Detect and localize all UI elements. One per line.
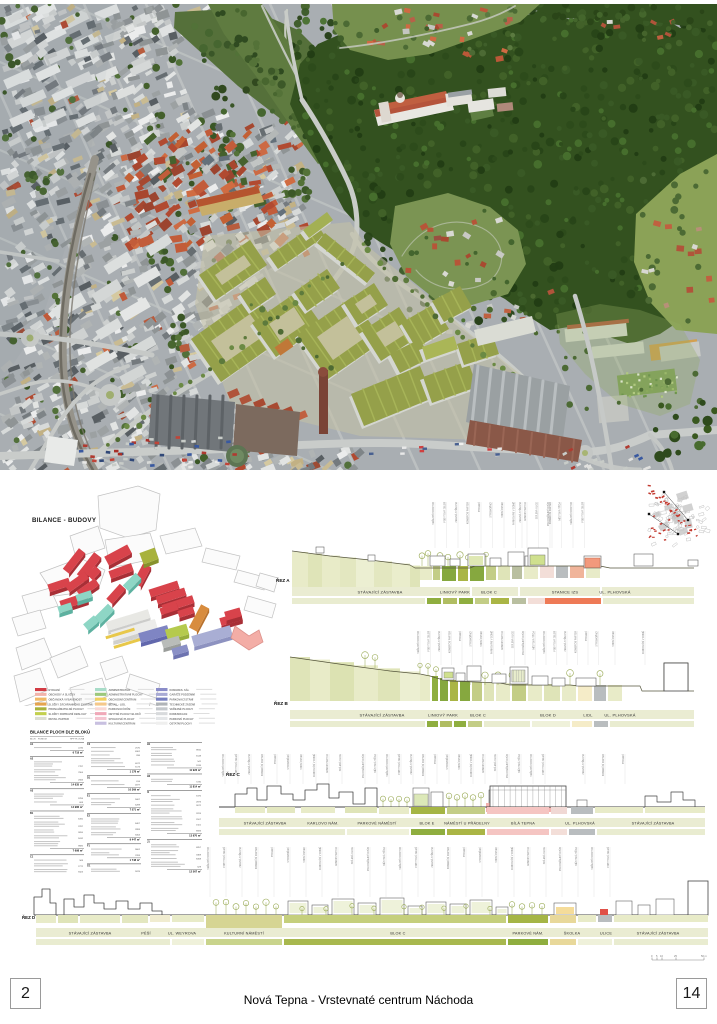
svg-text:ZELENÁ STŘECHA: ZELENÁ STŘECHA: [410, 754, 413, 775]
svg-text:ADMINISTRATIVA: ADMINISTRATIVA: [527, 847, 530, 866]
svg-text:KONGRES. SÁL: KONGRES. SÁL: [170, 687, 190, 692]
svg-text:608: 608: [79, 802, 83, 804]
svg-text:BYDLENÍ: BYDLENÍ: [478, 502, 481, 512]
svg-text:ADMINISTRATIVA: ADMINISTRATIVA: [501, 631, 504, 650]
svg-text:1 178 m²: 1 178 m²: [130, 770, 141, 774]
svg-text:FUNKCE: FUNKCE: [38, 739, 48, 741]
svg-text:ZELENÁ STŘECHA: ZELENÁ STŘECHA: [519, 502, 522, 523]
svg-text:7230: 7230: [196, 781, 202, 783]
svg-text:VODNÍ PRVEK: VODNÍ PRVEK: [300, 754, 303, 770]
svg-text:7 571 m²: 7 571 m²: [130, 808, 141, 812]
svg-text:STANICE IZS: STANICE IZS: [552, 590, 579, 595]
svg-text:HPP PLOCHA: HPP PLOCHA: [70, 738, 85, 741]
svg-text:SPOLKOVÉ PLOCHY: SPOLKOVÉ PLOCHY: [109, 716, 135, 721]
svg-text:BYDLENÍ: BYDLENÍ: [49, 687, 61, 692]
svg-text:VEŘEJNÝ PROSTOR: VEŘEJNÝ PROSTOR: [570, 502, 573, 525]
svg-text:STROMOŘADÍ: STROMOŘADÍ: [446, 754, 449, 770]
svg-text:BYDLENÍ: BYDLENÍ: [585, 631, 588, 641]
svg-text:10: 10: [660, 954, 663, 958]
svg-text:STROMOŘADÍ: STROMOŘADÍ: [596, 631, 599, 647]
svg-text:VEŘEJNÝ PROSTOR: VEŘEJNÝ PROSTOR: [207, 847, 210, 870]
svg-text:9784: 9784: [78, 798, 84, 800]
svg-text:50 m: 50 m: [701, 954, 707, 958]
svg-text:UL. PLHOVSKÁ: UL. PLHOVSKÁ: [565, 822, 595, 826]
svg-text:14 986 m²: 14 986 m²: [71, 805, 83, 809]
svg-text:3107: 3107: [196, 819, 202, 821]
svg-text:BÍLÁ TEPNA: BÍLÁ TEPNA: [511, 822, 535, 826]
svg-text:A2: A2: [30, 757, 34, 760]
svg-text:BLOK C: BLOK C: [470, 713, 486, 718]
svg-text:PARKOVÁNÍ V DOMĚ: PARKOVÁNÍ V DOMĚ: [511, 847, 514, 870]
svg-text:STROMOŘADÍ: STROMOŘADÍ: [479, 847, 482, 863]
svg-text:9810: 9810: [196, 750, 202, 752]
svg-text:C2: C2: [87, 743, 91, 746]
svg-text:RETAIL - LIDL: RETAIL - LIDL: [109, 702, 127, 706]
svg-text:ULICE: ULICE: [600, 932, 612, 936]
svg-text:PARKOVÁNÍ V DOMĚ: PARKOVÁNÍ V DOMĚ: [491, 631, 494, 654]
svg-text:ADMINISTRATIVA: ADMINISTRATIVA: [482, 754, 485, 773]
svg-text:25: 25: [674, 954, 677, 958]
svg-text:KOMERČNÍ PARTER: KOMERČNÍ PARTER: [261, 754, 264, 776]
svg-text:E1: E1: [87, 794, 91, 797]
svg-text:VODNÍ PRVEK: VODNÍ PRVEK: [458, 754, 461, 770]
svg-text:VODNÍ PRVEK: VODNÍ PRVEK: [612, 631, 615, 647]
svg-text:BILANCE - BUDOVY: BILANCE - BUDOVY: [32, 517, 97, 524]
svg-text:4877: 4877: [135, 785, 141, 787]
svg-text:2570: 2570: [135, 748, 141, 750]
svg-text:PRONAJÍMATELNÉ PLOCHY: PRONAJÍMATELNÉ PLOCHY: [49, 706, 85, 711]
svg-text:KOMERČNÍ PARTER: KOMERČNÍ PARTER: [255, 847, 258, 869]
svg-text:SDÍLENÁ ULICE: SDÍLENÁ ULICE: [339, 754, 342, 772]
svg-text:KOMERČNÍ PARTER: KOMERČNÍ PARTER: [467, 502, 470, 524]
svg-text:I1: I1: [147, 791, 150, 794]
svg-text:541: 541: [197, 761, 201, 763]
svg-text:B1: B1: [30, 812, 34, 815]
svg-text:OBYTNÉ PLOCHY BLOKŮ: OBYTNÉ PLOCHY BLOKŮ: [109, 711, 141, 716]
svg-text:KARLOVO NÁM.: KARLOVO NÁM.: [307, 822, 338, 826]
svg-text:ADMINISTRATIVNÍ PLOCHY: ADMINISTRATIVNÍ PLOCHY: [109, 692, 144, 697]
svg-text:PARKOVÁNÍ V DOMĚ: PARKOVÁNÍ V DOMĚ: [642, 631, 645, 654]
svg-text:ŠKOLKA: ŠKOLKA: [564, 931, 581, 936]
svg-text:PARKOVÁNÍ V DOMĚ: PARKOVÁNÍ V DOMĚ: [470, 754, 473, 777]
svg-text:STÁVAJÍCÍ ZÁSTAVBA: STÁVAJÍCÍ ZÁSTAVBA: [637, 932, 680, 936]
svg-text:5: 5: [656, 954, 658, 958]
svg-text:KULTURNÍ CENTRUM: KULTURNÍ CENTRUM: [109, 721, 136, 726]
svg-text:A1: A1: [30, 743, 34, 746]
svg-text:5667: 5667: [135, 799, 141, 801]
svg-text:STROMOŘADÍ: STROMOŘADÍ: [470, 631, 473, 647]
svg-text:OBČANSKÁ VYBAVENOST: OBČANSKÁ VYBAVENOST: [49, 697, 83, 702]
svg-text:BLOK: BLOK: [30, 739, 36, 741]
svg-text:VEŘEJNÝ PROSTOR: VEŘEJNÝ PROSTOR: [417, 631, 420, 654]
svg-text:3226: 3226: [196, 813, 202, 815]
svg-text:LIDL: LIDL: [583, 713, 593, 718]
svg-text:MĚSTSKÁ TŘÍDA: MĚSTSKÁ TŘÍDA: [533, 631, 536, 650]
svg-text:POBYTOVÁ ZELEŇ: POBYTOVÁ ZELEŇ: [582, 502, 585, 523]
svg-text:11 923 m²: 11 923 m²: [189, 768, 201, 772]
svg-text:1501: 1501: [196, 825, 202, 827]
svg-text:POLOVEŘEJNÝ DVŮR: POLOVEŘEJNÝ DVŮR: [367, 847, 370, 871]
svg-text:KOMERČNÍ PARTER: KOMERČNÍ PARTER: [447, 847, 450, 869]
svg-text:VEŘEJNÉ PLOCHY: VEŘEJNÉ PLOCHY: [170, 706, 194, 711]
svg-text:UL. WEYROVA: UL. WEYROVA: [168, 932, 197, 936]
svg-text:BILANCE PLOCH DLE BLOKŮ: BILANCE PLOCH DLE BLOKŮ: [30, 730, 90, 735]
svg-text:KOMERČNÍ PARTER: KOMERČNÍ PARTER: [449, 631, 452, 653]
svg-text:ZELENÁ STŘECHA: ZELENÁ STŘECHA: [438, 631, 441, 652]
svg-text:BYDLENÍ: BYDLENÍ: [274, 754, 277, 764]
svg-text:10 369 m²: 10 369 m²: [128, 788, 140, 792]
svg-text:3746: 3746: [196, 765, 202, 767]
svg-text:OBCHODY A SLUŽBY: OBCHODY A SLUŽBY: [49, 692, 76, 697]
svg-text:5064: 5064: [135, 835, 141, 837]
svg-text:7804: 7804: [78, 772, 84, 774]
svg-text:ŘEZ C: ŘEZ C: [226, 770, 240, 777]
svg-text:VODNÍ PRVEK: VODNÍ PRVEK: [480, 631, 483, 647]
svg-text:VEŘEJNÝ PROSTOR: VEŘEJNÝ PROSTOR: [543, 631, 546, 654]
svg-text:PARKOVACÍ STÁNÍ: PARKOVACÍ STÁNÍ: [170, 697, 194, 702]
svg-text:13 970 m²: 13 970 m²: [189, 833, 201, 837]
svg-text:6 718 m²: 6 718 m²: [73, 751, 84, 755]
svg-text:POLOVEŘEJNÝ DVŮR: POLOVEŘEJNÝ DVŮR: [559, 847, 562, 871]
svg-text:BYDLENÍ: BYDLENÍ: [463, 847, 466, 857]
svg-text:VEŘEJNÝ PROSTOR: VEŘEJNÝ PROSTOR: [530, 754, 533, 777]
svg-text:5375: 5375: [196, 796, 202, 798]
svg-text:STÁVAJÍCÍ ZÁSTAVBA: STÁVAJÍCÍ ZÁSTAVBA: [244, 822, 287, 826]
svg-text:KOMERČNÍ PARTER: KOMERČNÍ PARTER: [602, 754, 605, 776]
svg-text:BLOK C: BLOK C: [481, 590, 497, 595]
svg-text:KULTURNÍ NÁMĚSTÍ: KULTURNÍ NÁMĚSTÍ: [224, 931, 265, 936]
svg-text:ADMINISTRATIVA: ADMINISTRATIVA: [335, 847, 338, 866]
svg-text:STROMOŘADÍ: STROMOŘADÍ: [287, 754, 290, 770]
svg-text:ZELENÁ STŘECHA: ZELENÁ STŘECHA: [455, 502, 458, 523]
svg-text:ADMINISTRATIVA: ADMINISTRATIVA: [326, 754, 329, 773]
svg-text:2873: 2873: [196, 801, 202, 803]
svg-text:VODNÍ PRVEK: VODNÍ PRVEK: [495, 847, 498, 863]
svg-text:SLOŽKY DOPRAVNÍ OBSLUHY: SLOŽKY DOPRAVNÍ OBSLUHY: [49, 711, 87, 716]
svg-text:6902: 6902: [135, 751, 141, 753]
svg-text:4672: 4672: [135, 763, 141, 765]
svg-text:SDÍLENÁ ULICE: SDÍLENÁ ULICE: [543, 847, 546, 865]
svg-text:KOMERČNÍ PARTER: KOMERČNÍ PARTER: [422, 754, 425, 776]
svg-text:D1: D1: [87, 776, 91, 779]
svg-text:POBYTOVÁ ZELEŇ: POBYTOVÁ ZELEŇ: [542, 754, 545, 775]
svg-text:SDÍLENÁ ULICE: SDÍLENÁ ULICE: [494, 754, 497, 772]
svg-text:POBYTOVÁ ZELEŇ: POBYTOVÁ ZELEŇ: [398, 754, 401, 775]
svg-text:H1: H1: [147, 743, 151, 746]
svg-text:POLOVEŘEJNÝ DVŮR: POLOVEŘEJNÝ DVŮR: [522, 631, 525, 655]
svg-text:ADMINISTRATIVA: ADMINISTRATIVA: [109, 688, 131, 692]
svg-text:RETAIL PARTER: RETAIL PARTER: [49, 717, 69, 721]
svg-text:6289: 6289: [135, 805, 141, 807]
svg-text:ZELENÁ STŘECHA: ZELENÁ STŘECHA: [239, 847, 242, 868]
svg-text:LINIOVÝ PARK: LINIOVÝ PARK: [440, 590, 470, 595]
svg-text:8593: 8593: [196, 830, 202, 832]
svg-text:KOMUNIKACE: KOMUNIKACE: [170, 712, 188, 716]
svg-text:STÁVAJÍCÍ ZÁSTAVBA: STÁVAJÍCÍ ZÁSTAVBA: [360, 713, 405, 718]
svg-text:MĚSTSKÁ TŘÍDA: MĚSTSKÁ TŘÍDA: [575, 847, 578, 866]
svg-text:POBYTOVÁ ZELEŇ: POBYTOVÁ ZELEŇ: [415, 847, 418, 868]
svg-text:E2: E2: [87, 815, 91, 818]
svg-text:3655: 3655: [78, 832, 84, 834]
svg-text:BYDLENÍ: BYDLENÍ: [434, 754, 437, 764]
svg-text:MĚSTSKÁ TŘÍDA: MĚSTSKÁ TŘÍDA: [559, 502, 562, 521]
svg-text:PARKOVACÍ DŮM: PARKOVACÍ DŮM: [109, 706, 131, 711]
svg-text:PARKOVÁNÍ V DOMĚ: PARKOVÁNÍ V DOMĚ: [513, 502, 516, 525]
svg-text:NÁMĚSTÍ U PŘÁDELNY: NÁMĚSTÍ U PŘÁDELNY: [444, 821, 490, 826]
svg-text:POLOVEŘEJNÝ DVŮR: POLOVEŘEJNÝ DVŮR: [506, 754, 509, 778]
svg-text:BLOK D: BLOK D: [540, 713, 556, 718]
svg-text:MĚSTSKÁ TŘÍDA: MĚSTSKÁ TŘÍDA: [374, 754, 377, 773]
svg-text:2236: 2236: [78, 748, 84, 750]
svg-text:POBYTOVÁ ZELEŇ: POBYTOVÁ ZELEŇ: [444, 502, 447, 523]
svg-text:OBCHODNÍ CENTRUM: OBCHODNÍ CENTRUM: [109, 697, 137, 702]
svg-text:BYDLENÍ: BYDLENÍ: [271, 847, 274, 857]
svg-text:BYDLENÍ: BYDLENÍ: [459, 631, 462, 641]
svg-text:POBYTOVÁ ZELEŇ: POBYTOVÁ ZELEŇ: [607, 847, 610, 868]
svg-text:VEŘEJNÝ PROSTOR: VEŘEJNÝ PROSTOR: [432, 502, 435, 525]
svg-text:VEŘEJNÝ PROSTOR: VEŘEJNÝ PROSTOR: [591, 847, 594, 870]
svg-text:VODNÍ PRVEK: VODNÍ PRVEK: [303, 847, 306, 863]
svg-text:BLOK E: BLOK E: [420, 822, 435, 826]
svg-text:8407: 8407: [135, 823, 141, 825]
svg-text:SDÍLENÁ ULICE: SDÍLENÁ ULICE: [512, 631, 515, 649]
svg-text:GARÁŽE PODZEMNÍ: GARÁŽE PODZEMNÍ: [170, 692, 196, 697]
svg-text:5173: 5173: [135, 767, 141, 769]
svg-text:POBYTOVÁ ZELEŇ: POBYTOVÁ ZELEŇ: [223, 847, 226, 868]
svg-text:VEŘEJNÝ PROSTOR: VEŘEJNÝ PROSTOR: [386, 754, 389, 777]
svg-text:ZELENÁ STŘECHA: ZELENÁ STŘECHA: [582, 754, 585, 775]
svg-text:SDÍLENÁ ULICE: SDÍLENÁ ULICE: [536, 502, 539, 520]
svg-text:PARKOVÉ PLOCHY: PARKOVÉ PLOCHY: [170, 716, 194, 721]
svg-text:VEŘEJNÝ PROSTOR: VEŘEJNÝ PROSTOR: [399, 847, 402, 870]
svg-text:BYDLENÍ: BYDLENÍ: [622, 754, 625, 764]
svg-text:A3: A3: [30, 790, 34, 793]
svg-text:KOMERČNÍ PARTER: KOMERČNÍ PARTER: [575, 631, 578, 653]
svg-text:PARKOVÁNÍ V DOMĚ: PARKOVÁNÍ V DOMĚ: [319, 847, 322, 870]
svg-text:6450: 6450: [78, 818, 84, 820]
svg-text:3672: 3672: [196, 805, 202, 807]
svg-text:UL. PLHOVSKÁ: UL. PLHOVSKÁ: [604, 713, 635, 718]
svg-text:PARKOVÉ NÁMĚSTÍ: PARKOVÉ NÁMĚSTÍ: [357, 821, 397, 826]
svg-text:PARKOVÁNÍ V DOMĚ: PARKOVÁNÍ V DOMĚ: [313, 754, 316, 777]
svg-text:STÁVAJÍCÍ ZÁSTAVBA: STÁVAJÍCÍ ZÁSTAVBA: [358, 590, 403, 595]
svg-text:MĚSTSKÁ TŘÍDA: MĚSTSKÁ TŘÍDA: [518, 754, 521, 773]
svg-text:836: 836: [136, 755, 140, 757]
svg-text:11 814 m²: 11 814 m²: [189, 784, 201, 788]
svg-text:POBYTOVÁ ZELEŇ: POBYTOVÁ ZELEŇ: [428, 631, 431, 652]
svg-text:POBYTOVÁ ZELEŇ: POBYTOVÁ ZELEŇ: [554, 631, 557, 652]
svg-text:BLOK C: BLOK C: [390, 932, 405, 936]
svg-text:STROMOŘADÍ: STROMOŘADÍ: [287, 847, 290, 863]
svg-text:ŘEZ B: ŘEZ B: [274, 699, 288, 706]
svg-text:PĚŠÍ: PĚŠÍ: [141, 931, 151, 936]
svg-text:ŘEZ D: ŘEZ D: [22, 915, 35, 920]
svg-text:UL. PLHOVSKÁ: UL. PLHOVSKÁ: [599, 590, 630, 595]
svg-text:SLOŽKY ZÁCHRANNÉHO SYSTÉMU: SLOŽKY ZÁCHRANNÉHO SYSTÉMU: [49, 701, 94, 706]
svg-text:ŘEZ A: ŘEZ A: [276, 576, 290, 583]
svg-text:2584: 2584: [78, 780, 84, 782]
svg-text:0: 0: [651, 954, 653, 958]
svg-text:14 635 m²: 14 635 m²: [71, 783, 83, 787]
svg-text:LINIOVÝ PARK: LINIOVÝ PARK: [428, 713, 458, 718]
svg-text:ZELENÁ STŘECHA: ZELENÁ STŘECHA: [431, 847, 434, 868]
svg-text:VODNÍ PRVEK: VODNÍ PRVEK: [501, 502, 504, 518]
svg-text:ZELENÁ STŘECHA: ZELENÁ STŘECHA: [248, 754, 251, 775]
svg-text:TECHNICKÉ ZÁZEMÍ: TECHNICKÉ ZÁZEMÍ: [170, 701, 196, 706]
svg-text:POLOVEŘEJNÝ DVŮR: POLOVEŘEJNÝ DVŮR: [362, 754, 365, 778]
svg-text:SDÍLENÁ ULICE: SDÍLENÁ ULICE: [351, 847, 354, 865]
svg-text:H2: H2: [147, 775, 151, 778]
svg-text:OSTATNÍ PLOCHY: OSTATNÍ PLOCHY: [170, 721, 193, 726]
svg-text:STÁVAJÍCÍ ZÁSTAVBA: STÁVAJÍCÍ ZÁSTAVBA: [632, 822, 675, 826]
svg-text:7787: 7787: [78, 766, 84, 768]
svg-text:ADMINISTRATIVA: ADMINISTRATIVA: [524, 502, 527, 521]
svg-text:KOMERČNÍ PARTER: KOMERČNÍ PARTER: [549, 502, 552, 524]
svg-text:6148: 6148: [196, 755, 202, 757]
svg-text:2297: 2297: [78, 826, 84, 828]
svg-text:PARKOVÉ NÁM.: PARKOVÉ NÁM.: [512, 931, 543, 936]
svg-text:VEŘEJNÝ PROSTOR: VEŘEJNÝ PROSTOR: [222, 754, 225, 777]
svg-text:ZELENÁ STŘECHA: ZELENÁ STŘECHA: [564, 631, 567, 652]
svg-text:STÁVAJÍCÍ ZÁSTAVBA: STÁVAJÍCÍ ZÁSTAVBA: [69, 932, 112, 936]
svg-text:MĚSTSKÁ TŘÍDA: MĚSTSKÁ TŘÍDA: [383, 847, 386, 866]
svg-text:614: 614: [136, 781, 140, 783]
svg-text:STROMOŘADÍ: STROMOŘADÍ: [490, 502, 493, 518]
svg-text:3993: 3993: [135, 829, 141, 831]
